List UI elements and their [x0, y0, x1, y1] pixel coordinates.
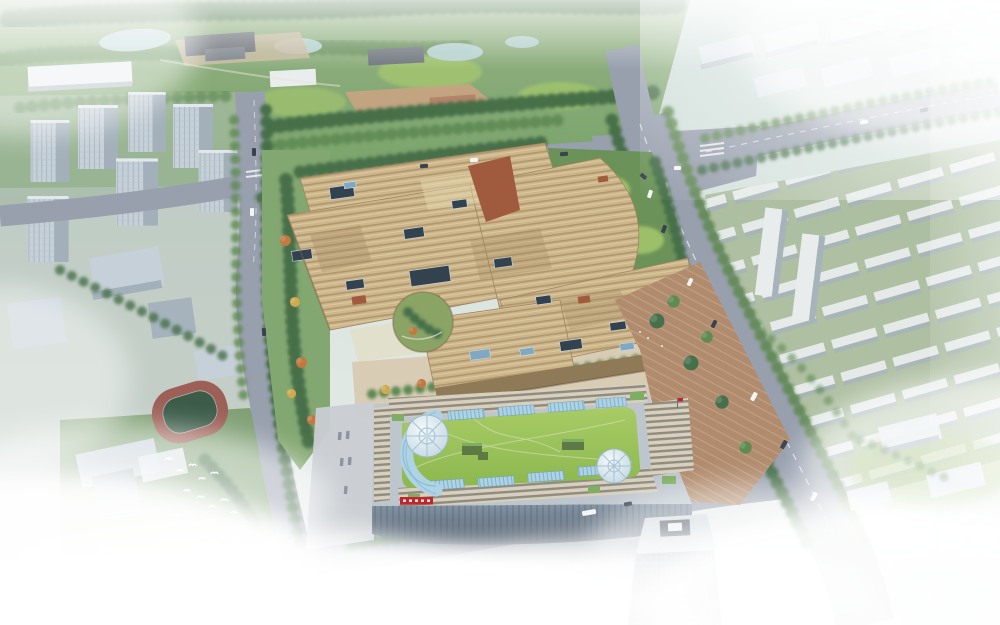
- rooftop-dome-small: [597, 449, 631, 483]
- rooftop-dome-large: [406, 415, 448, 457]
- roof-courtyard: [393, 292, 453, 352]
- rendering-canvas: [0, 0, 1000, 625]
- aerial-rendering: [0, 0, 1000, 625]
